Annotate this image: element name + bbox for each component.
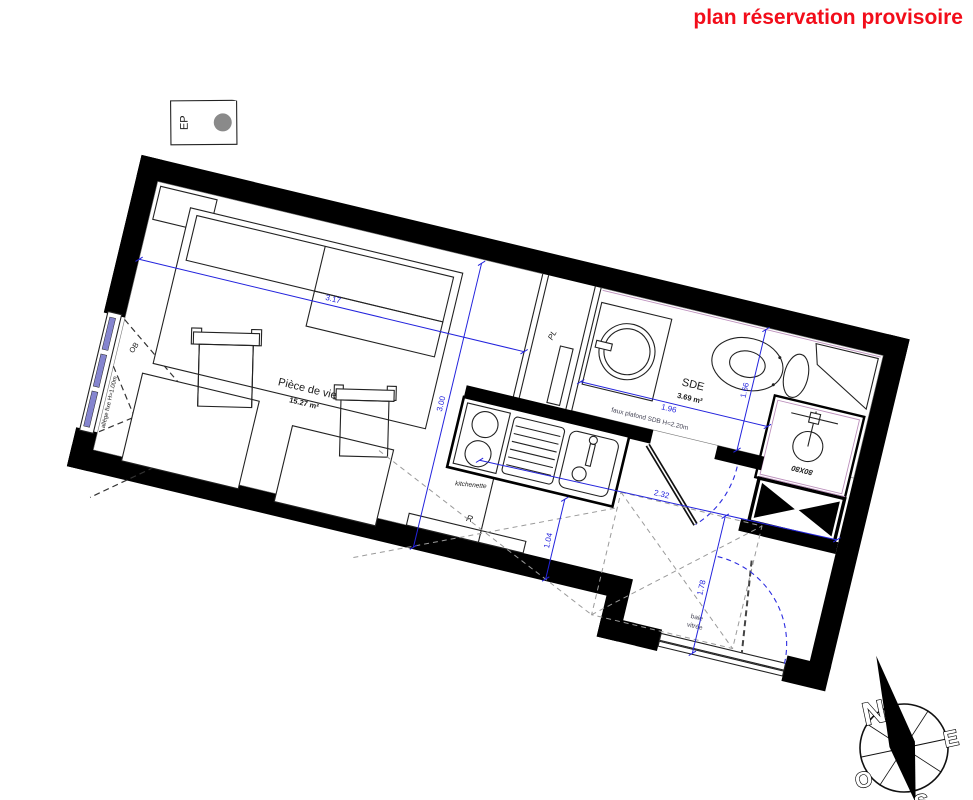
rainpipe-label: EP (179, 115, 191, 130)
floor-plan: EP Allège vitrée F OB allège fixe H=1.00… (52, 82, 973, 725)
glazed-sill-label: Allège vitrée (52, 368, 71, 418)
toilet (706, 330, 813, 403)
compass-svg: N E O S (840, 652, 973, 800)
sde-area: 3.69 m² (676, 391, 704, 406)
vanity-sink (582, 302, 672, 400)
dim-entry-depth-value: 1.78 (695, 578, 708, 596)
window-type-label: OB (127, 341, 140, 355)
dimension-entry-depth: 1.78 (681, 511, 729, 657)
compass-west: O (853, 766, 875, 794)
floor-plan-svg: EP Allège vitrée F OB allège fixe H=1.00… (52, 82, 973, 725)
bay-window-label-2: vitrée (686, 621, 703, 632)
kitchenette-label: kitchenette (455, 480, 487, 490)
dim-living-depth-value: 3.00 (435, 395, 448, 413)
kitchenette: kitchenette (443, 385, 654, 529)
window-label: F (68, 338, 79, 346)
sde-name: SDE (681, 377, 706, 394)
compass: N E O S (840, 652, 973, 800)
bay-window-door: baie vitrée (658, 544, 807, 676)
rainwater-pipe: EP (171, 100, 237, 145)
dim-hall-value: 1.04 (542, 531, 555, 549)
page-title: plan réservation provisoire (693, 6, 963, 30)
floor-plan-page: plan réservation provisoire EP (0, 0, 973, 800)
closet-label: PL (546, 329, 559, 342)
dim-entry-width-value: 2.32 (653, 488, 671, 501)
compass-east: E (941, 725, 961, 753)
compass-south: S (912, 788, 932, 800)
